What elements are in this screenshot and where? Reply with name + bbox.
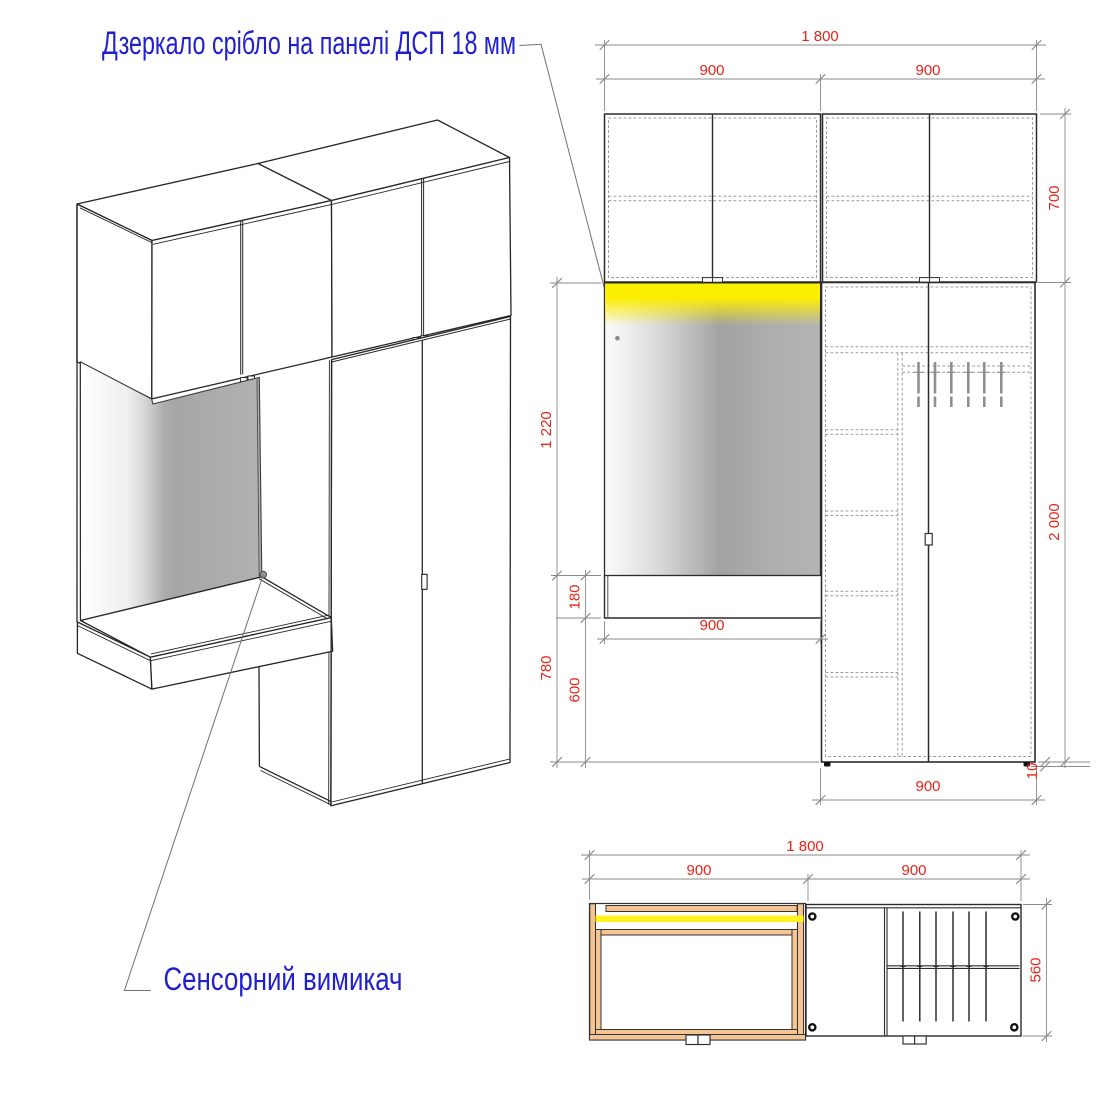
svg-text:180: 180 [567, 584, 584, 609]
svg-text:1 220: 1 220 [538, 411, 555, 449]
svg-text:900: 900 [699, 617, 724, 634]
svg-text:10: 10 [1024, 763, 1041, 780]
svg-text:900: 900 [686, 862, 711, 879]
svg-text:Сенсорний вимикач: Сенсорний вимикач [164, 961, 403, 997]
svg-text:900: 900 [901, 862, 926, 879]
svg-text:2 000: 2 000 [1046, 503, 1063, 541]
svg-text:600: 600 [567, 677, 584, 702]
svg-text:900: 900 [915, 62, 940, 79]
svg-text:780: 780 [538, 655, 555, 680]
svg-text:900: 900 [915, 778, 940, 795]
svg-text:900: 900 [699, 62, 724, 79]
svg-text:Дзеркало срібло на панелі ДСП: Дзеркало срібло на панелі ДСП 18 мм [102, 25, 516, 61]
svg-text:1 800: 1 800 [801, 28, 839, 45]
svg-text:1 800: 1 800 [786, 838, 824, 855]
svg-text:700: 700 [1046, 185, 1063, 210]
svg-text:560: 560 [1028, 957, 1045, 982]
